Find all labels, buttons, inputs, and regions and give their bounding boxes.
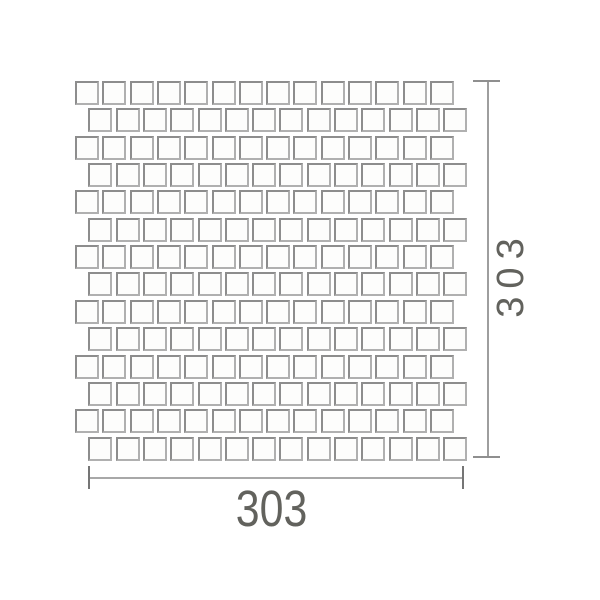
mosaic-tile (212, 245, 236, 269)
mosaic-tile (252, 272, 276, 296)
mosaic-tile (198, 218, 222, 242)
mosaic-tile (170, 437, 194, 461)
mosaic-tile (375, 355, 399, 379)
mosaic-tile (307, 382, 331, 406)
mosaic-tile (389, 272, 413, 296)
mosaic-tile (130, 190, 154, 214)
mosaic-tile (143, 382, 167, 406)
mosaic-tile (321, 300, 345, 324)
width-dimension-line (88, 477, 463, 479)
mosaic-tile (88, 108, 112, 132)
mosaic-tile (307, 218, 331, 242)
mosaic-tile (443, 382, 467, 406)
mosaic-tile (198, 382, 222, 406)
mosaic-tile (130, 409, 154, 433)
mosaic-tile (361, 327, 385, 351)
mosaic-tile (102, 355, 126, 379)
mosaic-tile (239, 409, 263, 433)
mosaic-tile (198, 108, 222, 132)
mosaic-tile (75, 81, 99, 105)
mosaic-tile (143, 108, 167, 132)
mosaic-tile (75, 245, 99, 269)
mosaic-tile (403, 355, 427, 379)
mosaic-tile (334, 272, 358, 296)
mosaic-tile (184, 136, 208, 160)
mosaic-tile (416, 327, 440, 351)
mosaic-tile (252, 163, 276, 187)
mosaic-tile (321, 190, 345, 214)
mosaic-tile (170, 108, 194, 132)
mosaic-tile (102, 136, 126, 160)
mosaic-tile (279, 327, 303, 351)
mosaic-tile (75, 136, 99, 160)
mosaic-tile (239, 245, 263, 269)
mosaic-tile (252, 218, 276, 242)
mosaic-tile (143, 272, 167, 296)
mosaic-tile (416, 382, 440, 406)
width-dimension-tick-left (88, 466, 90, 489)
mosaic-tile (375, 136, 399, 160)
mosaic-tile (293, 245, 317, 269)
mosaic-tile (170, 272, 194, 296)
mosaic-tile (348, 355, 372, 379)
mosaic-tile (375, 190, 399, 214)
mosaic-tile (293, 300, 317, 324)
mosaic-tile (403, 300, 427, 324)
mosaic-tile (348, 245, 372, 269)
mosaic-tile (116, 108, 140, 132)
mosaic-tile (443, 218, 467, 242)
mosaic-tile (279, 163, 303, 187)
mosaic-tile (239, 136, 263, 160)
mosaic-tile (361, 163, 385, 187)
mosaic-tile (361, 218, 385, 242)
height-dimension-value: 303 (490, 230, 532, 317)
mosaic-tile (389, 327, 413, 351)
mosaic-tile (102, 190, 126, 214)
mosaic-tile (157, 245, 181, 269)
mosaic-tile (266, 245, 290, 269)
mosaic-tile (225, 108, 249, 132)
mosaic-tile (239, 300, 263, 324)
mosaic-tile (266, 300, 290, 324)
mosaic-tile (225, 218, 249, 242)
mosaic-tile (307, 437, 331, 461)
mosaic-tile (403, 190, 427, 214)
mosaic-tile (143, 437, 167, 461)
mosaic-tile (184, 300, 208, 324)
mosaic-tile (430, 409, 454, 433)
mosaic-tile (334, 437, 358, 461)
mosaic-tile (157, 81, 181, 105)
mosaic-tile (293, 409, 317, 433)
mosaic-tile (157, 190, 181, 214)
mosaic-tile (252, 382, 276, 406)
mosaic-tile (266, 190, 290, 214)
mosaic-tile (157, 409, 181, 433)
mosaic-tile (266, 81, 290, 105)
mosaic-tile (334, 327, 358, 351)
mosaic-tile (88, 163, 112, 187)
mosaic-tile (348, 81, 372, 105)
mosaic-tile (403, 81, 427, 105)
mosaic-tile (252, 327, 276, 351)
mosaic-tile (375, 81, 399, 105)
mosaic-tile (239, 355, 263, 379)
mosaic-tile (116, 437, 140, 461)
mosaic-tile (252, 437, 276, 461)
mosaic-tile (375, 245, 399, 269)
mosaic-tile (102, 81, 126, 105)
mosaic-tile (279, 382, 303, 406)
mosaic-tile (279, 218, 303, 242)
mosaic-tile (321, 355, 345, 379)
mosaic-tile (102, 409, 126, 433)
mosaic-tile (225, 382, 249, 406)
mosaic-tile (334, 108, 358, 132)
mosaic-tile (416, 108, 440, 132)
mosaic-tile (88, 218, 112, 242)
mosaic-tile (225, 437, 249, 461)
mosaic-tile (293, 355, 317, 379)
mosaic-tile (430, 355, 454, 379)
mosaic-tile (130, 355, 154, 379)
mosaic-tile (143, 163, 167, 187)
mosaic-tile (239, 81, 263, 105)
mosaic-tile (403, 245, 427, 269)
mosaic-tile (443, 163, 467, 187)
mosaic-tile (225, 272, 249, 296)
mosaic-tile (88, 437, 112, 461)
mosaic-tile (416, 437, 440, 461)
mosaic-tile (321, 245, 345, 269)
height-dimension-label: 303 (492, 230, 530, 317)
height-dimension-tick-bottom (473, 456, 500, 458)
mosaic-tile (184, 409, 208, 433)
mosaic-tile (293, 81, 317, 105)
mosaic-tile (430, 300, 454, 324)
mosaic-tile (116, 272, 140, 296)
mosaic-tile (116, 327, 140, 351)
mosaic-tile (334, 382, 358, 406)
mosaic-tile (102, 300, 126, 324)
mosaic-tile (348, 409, 372, 433)
mosaic-tile (389, 437, 413, 461)
mosaic-tile (321, 136, 345, 160)
mosaic-tile (307, 327, 331, 351)
width-dimension-label: 303 (122, 483, 422, 534)
mosaic-tile (361, 108, 385, 132)
mosaic-tile (321, 409, 345, 433)
mosaic-tile (75, 300, 99, 324)
mosaic-tile (102, 245, 126, 269)
mosaic-tile (88, 327, 112, 351)
mosaic-tile (75, 190, 99, 214)
mosaic-tile (130, 81, 154, 105)
mosaic-tile (416, 218, 440, 242)
mosaic-tile (348, 300, 372, 324)
mosaic-tile (279, 108, 303, 132)
mosaic-tile (430, 190, 454, 214)
mosaic-tile (266, 409, 290, 433)
mosaic-tile (184, 190, 208, 214)
mosaic-tile (143, 327, 167, 351)
mosaic-tile (389, 382, 413, 406)
mosaic-tile (293, 190, 317, 214)
mosaic-tile (225, 327, 249, 351)
mosaic-tile (212, 355, 236, 379)
mosaic-tile (88, 382, 112, 406)
mosaic-tile (348, 190, 372, 214)
mosaic-tile (157, 300, 181, 324)
mosaic-tile (170, 327, 194, 351)
mosaic-tile (307, 163, 331, 187)
mosaic-tile (116, 163, 140, 187)
mosaic-tile (403, 409, 427, 433)
mosaic-tile (416, 272, 440, 296)
mosaic-tile (430, 245, 454, 269)
mosaic-tile (130, 245, 154, 269)
mosaic-tile (389, 108, 413, 132)
mosaic-tile (157, 355, 181, 379)
mosaic-tile (88, 272, 112, 296)
width-dimension-value: 303 (236, 483, 307, 534)
mosaic-tile (279, 272, 303, 296)
mosaic-tile (430, 81, 454, 105)
mosaic-tile (443, 272, 467, 296)
mosaic-tile (361, 437, 385, 461)
mosaic-tile (279, 437, 303, 461)
height-dimension-tick-top (473, 80, 500, 82)
mosaic-tile (416, 163, 440, 187)
mosaic-tile (293, 136, 317, 160)
mosaic-tile (361, 382, 385, 406)
mosaic-tile (266, 355, 290, 379)
mosaic-tile (389, 163, 413, 187)
mosaic-tile (212, 136, 236, 160)
mosaic-tile (198, 163, 222, 187)
mosaic-tile (212, 300, 236, 324)
mosaic-tile (266, 136, 290, 160)
mosaic-tile (170, 218, 194, 242)
mosaic-tile (307, 108, 331, 132)
mosaic-tile (184, 81, 208, 105)
mosaic-tile (334, 163, 358, 187)
mosaic-tile (212, 190, 236, 214)
mosaic-tile (184, 355, 208, 379)
mosaic-tile (239, 190, 263, 214)
mosaic-tile (430, 136, 454, 160)
mosaic-tile (184, 245, 208, 269)
height-dimension-line (487, 80, 489, 457)
mosaic-tile (116, 382, 140, 406)
mosaic-tile (212, 409, 236, 433)
mosaic-tile (443, 108, 467, 132)
width-dimension-tick-right (462, 466, 464, 489)
mosaic-tile (348, 136, 372, 160)
drawing-canvas: 303 303 (0, 0, 600, 600)
mosaic-tile (375, 409, 399, 433)
mosaic-tile (321, 81, 345, 105)
mosaic-tile (403, 136, 427, 160)
mosaic-tile (212, 81, 236, 105)
mosaic-tile (252, 108, 276, 132)
mosaic-tile (157, 136, 181, 160)
mosaic-tile (443, 327, 467, 351)
mosaic-tile (334, 218, 358, 242)
mosaic-tile (143, 218, 167, 242)
mosaic-tile (443, 437, 467, 461)
mosaic-tile (198, 437, 222, 461)
mosaic-tile (389, 218, 413, 242)
mosaic-tile (75, 409, 99, 433)
mosaic-tile (198, 272, 222, 296)
mosaic-tile (170, 382, 194, 406)
mosaic-tile (130, 300, 154, 324)
mosaic-tile (170, 163, 194, 187)
mosaic-tile (198, 327, 222, 351)
mosaic-tile (375, 300, 399, 324)
mosaic-tile (225, 163, 249, 187)
mosaic-tile (307, 272, 331, 296)
mosaic-tile (130, 136, 154, 160)
mosaic-tile (361, 272, 385, 296)
mosaic-tile (116, 218, 140, 242)
mosaic-tile (75, 355, 99, 379)
